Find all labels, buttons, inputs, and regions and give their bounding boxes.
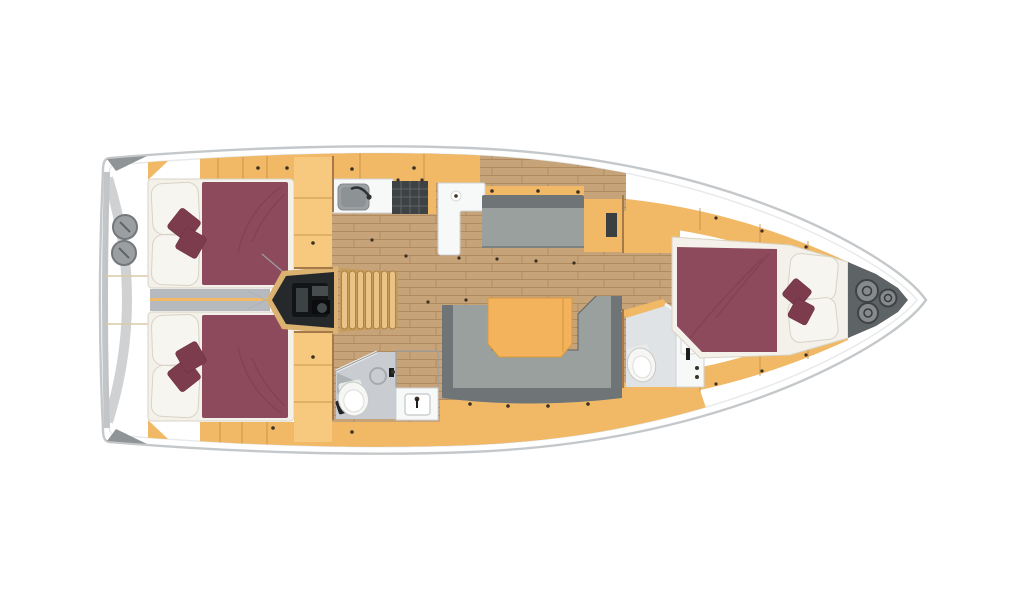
berth-bedspread <box>202 182 288 285</box>
cabinet-vent <box>606 213 617 237</box>
port-sofa-backrest <box>482 195 584 210</box>
stern-deck-hatch-icon <box>112 241 136 265</box>
port-sofa-seat <box>482 208 584 248</box>
engine-part <box>296 288 308 312</box>
washroom-floor <box>396 350 438 390</box>
wardrobe-starboard <box>294 332 332 442</box>
stern-deck-hatch-icon <box>113 215 137 239</box>
wardrobe-port <box>294 157 332 268</box>
u-sofa-back-right <box>611 296 622 398</box>
step-tread <box>382 271 388 329</box>
double-berth <box>148 161 294 288</box>
faucet-base <box>366 194 371 199</box>
bow-hatch-icon <box>858 303 878 323</box>
handle-dot <box>311 241 315 245</box>
yacht-floorplan-stage <box>0 0 1024 600</box>
step-tread <box>342 271 348 329</box>
step-tread <box>366 271 372 329</box>
bow-hatch-icon <box>880 290 897 307</box>
forward-cabin <box>672 237 848 358</box>
step-tread <box>390 271 396 329</box>
yacht-floorplan <box>0 0 1024 600</box>
aft-corridor <box>150 289 270 311</box>
engine-part <box>312 286 328 296</box>
door-handle-dot <box>391 370 395 374</box>
step-tread <box>374 271 380 329</box>
corridor-divider <box>150 298 270 301</box>
handle-dot <box>311 355 315 359</box>
step-tread <box>350 271 356 329</box>
u-sofa-back-left <box>442 305 453 398</box>
counter-divider <box>428 181 436 214</box>
vanity-faucet-icon <box>686 348 690 360</box>
bow-hatch-icon <box>856 280 878 302</box>
fitting-dot <box>695 366 699 370</box>
transom-edge-shade <box>105 172 107 428</box>
step-tread <box>358 271 364 329</box>
interior <box>148 150 908 450</box>
salon-table <box>488 298 572 357</box>
sofa-back-trim <box>480 186 584 196</box>
counter-fitting-dot <box>454 194 458 198</box>
fitting-dot <box>695 375 699 379</box>
double-berth-mirrored <box>148 312 294 439</box>
companionway-steps <box>340 268 398 332</box>
engine-part <box>317 303 327 313</box>
